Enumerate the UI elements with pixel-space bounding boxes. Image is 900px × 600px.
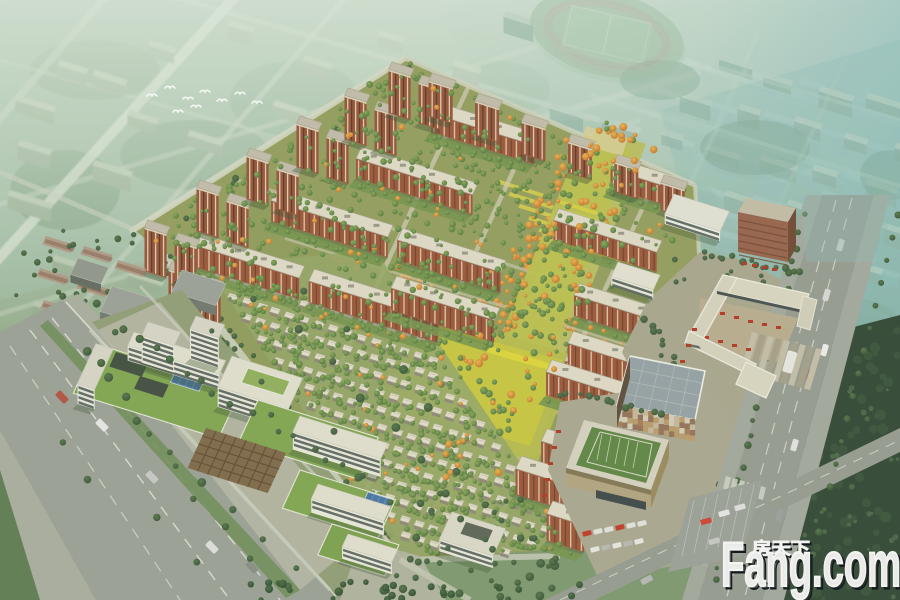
svg-text:Fang.com: Fang.com [721,530,900,600]
